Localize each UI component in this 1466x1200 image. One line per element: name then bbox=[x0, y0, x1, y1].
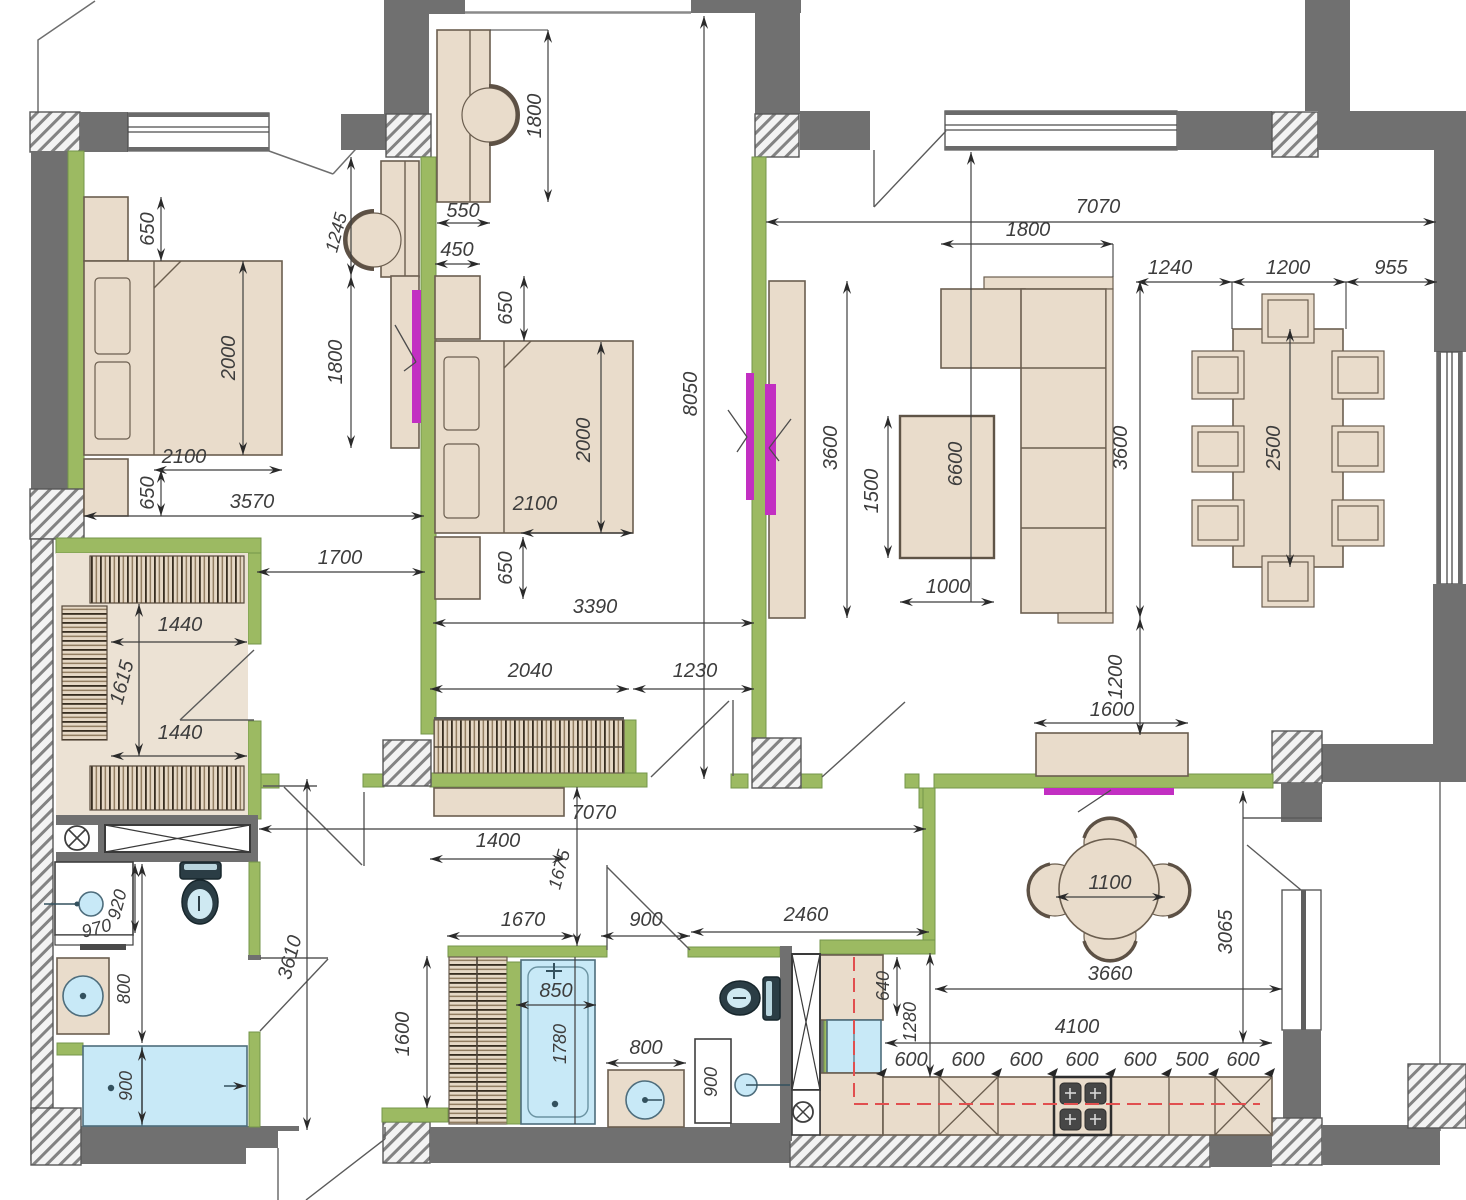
svg-text:1800: 1800 bbox=[524, 94, 546, 139]
svg-text:1600: 1600 bbox=[392, 1012, 414, 1057]
svg-text:3600: 3600 bbox=[820, 426, 842, 471]
svg-text:3660: 3660 bbox=[1088, 963, 1133, 985]
svg-text:2000: 2000 bbox=[573, 418, 595, 464]
svg-text:640: 640 bbox=[873, 971, 893, 1001]
svg-text:650: 650 bbox=[137, 476, 159, 509]
svg-text:900: 900 bbox=[116, 1071, 136, 1101]
svg-text:1440: 1440 bbox=[158, 614, 203, 636]
svg-text:2460: 2460 bbox=[783, 904, 829, 926]
svg-text:600: 600 bbox=[1123, 1049, 1156, 1071]
svg-text:600: 600 bbox=[1065, 1049, 1098, 1071]
svg-text:500: 500 bbox=[1175, 1049, 1208, 1071]
svg-text:1440: 1440 bbox=[158, 722, 203, 744]
svg-text:1500: 1500 bbox=[861, 469, 883, 514]
svg-text:1100: 1100 bbox=[1088, 872, 1131, 894]
svg-text:800: 800 bbox=[114, 974, 134, 1004]
svg-text:600: 600 bbox=[1009, 1049, 1042, 1071]
svg-text:2100: 2100 bbox=[161, 446, 207, 468]
svg-text:2040: 2040 bbox=[507, 660, 553, 682]
svg-text:850: 850 bbox=[539, 980, 572, 1002]
svg-text:1800: 1800 bbox=[325, 340, 347, 385]
svg-text:1670: 1670 bbox=[501, 909, 546, 931]
svg-text:600: 600 bbox=[1226, 1049, 1259, 1071]
svg-text:8050: 8050 bbox=[680, 372, 702, 417]
svg-text:900: 900 bbox=[701, 1067, 721, 1097]
svg-text:1000: 1000 bbox=[926, 576, 971, 598]
svg-text:1400: 1400 bbox=[476, 830, 521, 852]
svg-text:650: 650 bbox=[495, 551, 517, 584]
svg-text:1200: 1200 bbox=[1105, 655, 1127, 700]
svg-text:1240: 1240 bbox=[1148, 257, 1193, 279]
svg-text:7070: 7070 bbox=[1076, 196, 1121, 218]
svg-text:1230: 1230 bbox=[673, 660, 718, 682]
svg-text:3065: 3065 bbox=[1215, 909, 1237, 954]
svg-text:1780: 1780 bbox=[550, 1024, 570, 1064]
svg-text:800: 800 bbox=[629, 1037, 662, 1059]
svg-text:600: 600 bbox=[894, 1049, 927, 1071]
svg-text:600: 600 bbox=[951, 1049, 984, 1071]
svg-text:955: 955 bbox=[1374, 257, 1408, 279]
svg-text:1200: 1200 bbox=[1266, 257, 1311, 279]
svg-text:650: 650 bbox=[495, 291, 517, 324]
svg-text:1800: 1800 bbox=[1006, 219, 1051, 241]
svg-text:6600: 6600 bbox=[945, 442, 967, 487]
svg-text:1280: 1280 bbox=[900, 1002, 920, 1042]
svg-text:7070: 7070 bbox=[572, 802, 617, 824]
svg-text:3390: 3390 bbox=[573, 596, 618, 618]
svg-text:2000: 2000 bbox=[218, 336, 240, 382]
svg-text:1600: 1600 bbox=[1090, 699, 1135, 721]
svg-text:900: 900 bbox=[629, 909, 662, 931]
svg-text:3570: 3570 bbox=[230, 491, 275, 513]
svg-text:2100: 2100 bbox=[512, 493, 558, 515]
svg-text:450: 450 bbox=[440, 239, 473, 261]
svg-text:3600: 3600 bbox=[1110, 426, 1132, 471]
svg-text:550: 550 bbox=[446, 200, 479, 222]
svg-text:2500: 2500 bbox=[1263, 426, 1285, 472]
svg-text:1700: 1700 bbox=[318, 547, 363, 569]
svg-text:4100: 4100 bbox=[1055, 1016, 1100, 1038]
svg-text:650: 650 bbox=[137, 212, 159, 245]
